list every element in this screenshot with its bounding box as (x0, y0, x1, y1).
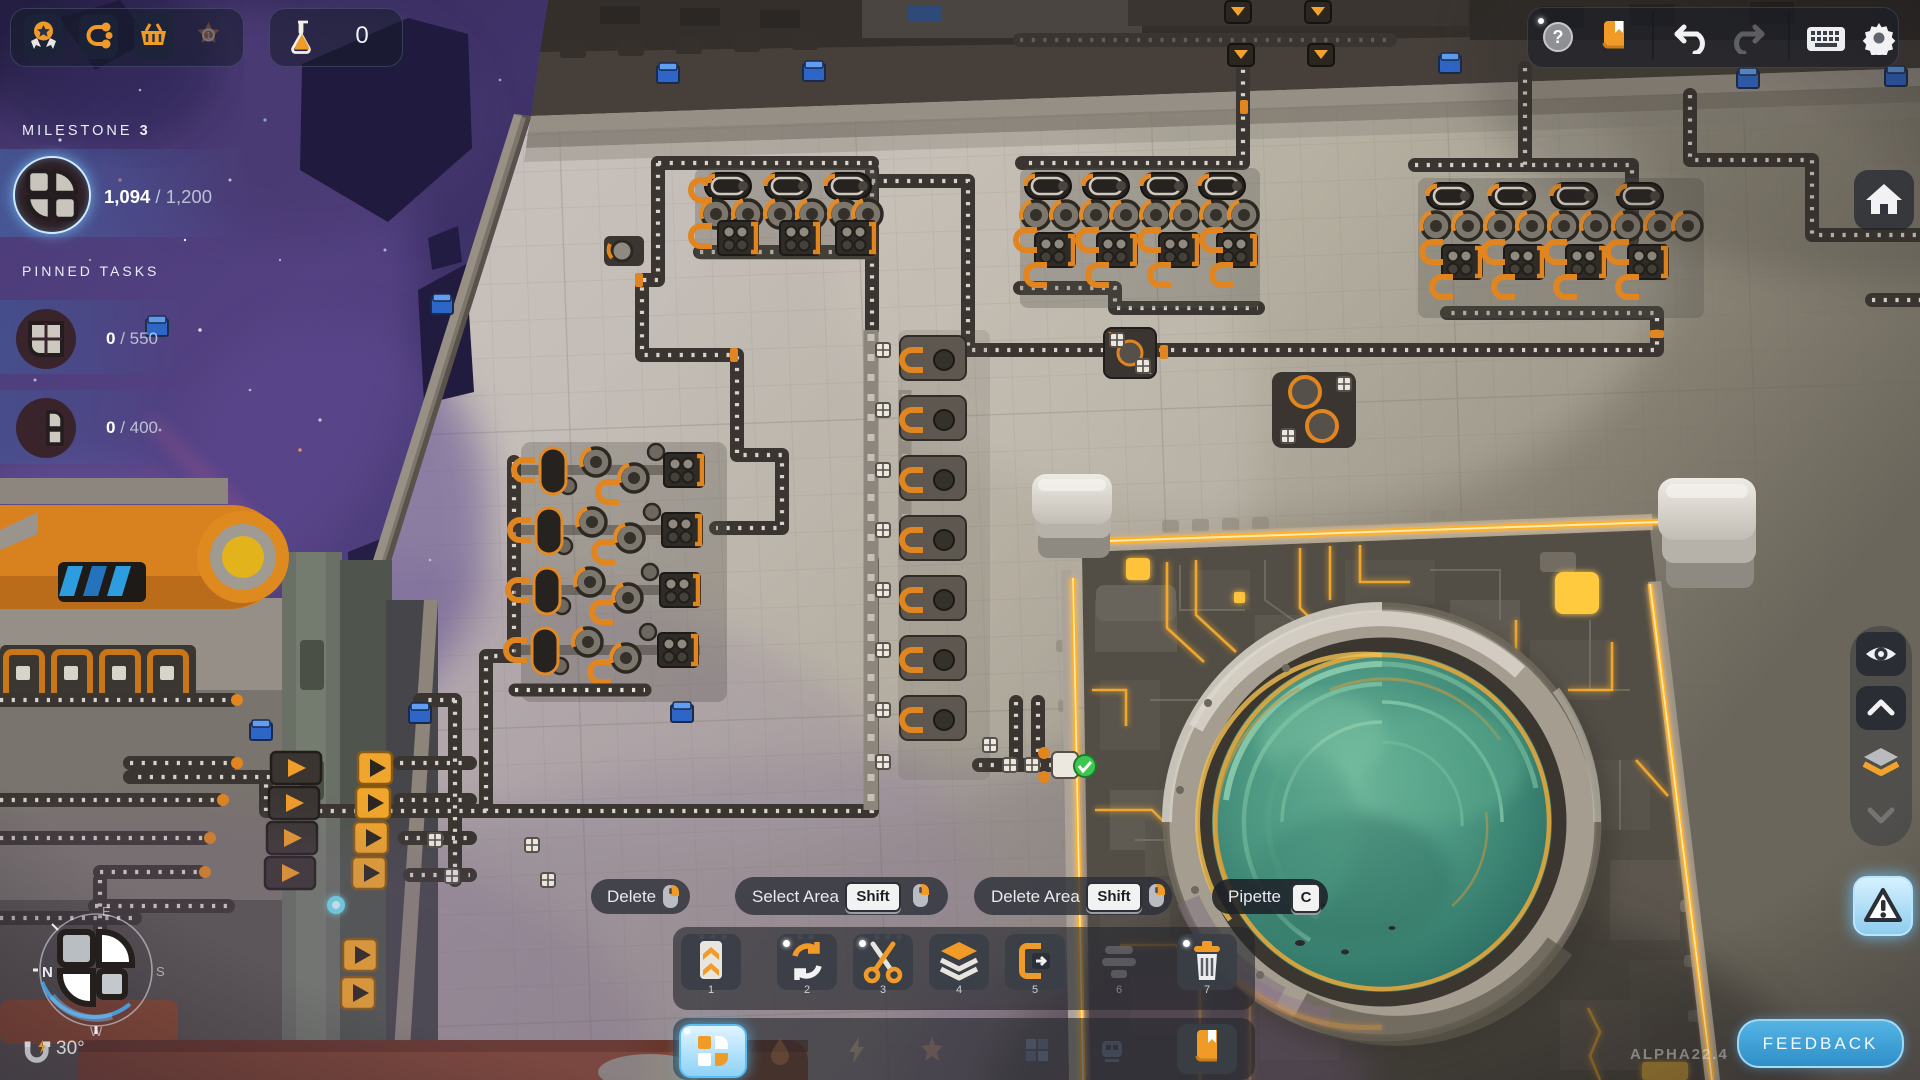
svg-text:E: E (102, 904, 111, 919)
svg-text:N: N (42, 964, 53, 981)
svg-text:W: W (90, 1024, 103, 1039)
svg-text:1: 1 (206, 31, 212, 42)
svg-text:S: S (156, 964, 165, 979)
svg-text:?: ? (1553, 27, 1564, 47)
